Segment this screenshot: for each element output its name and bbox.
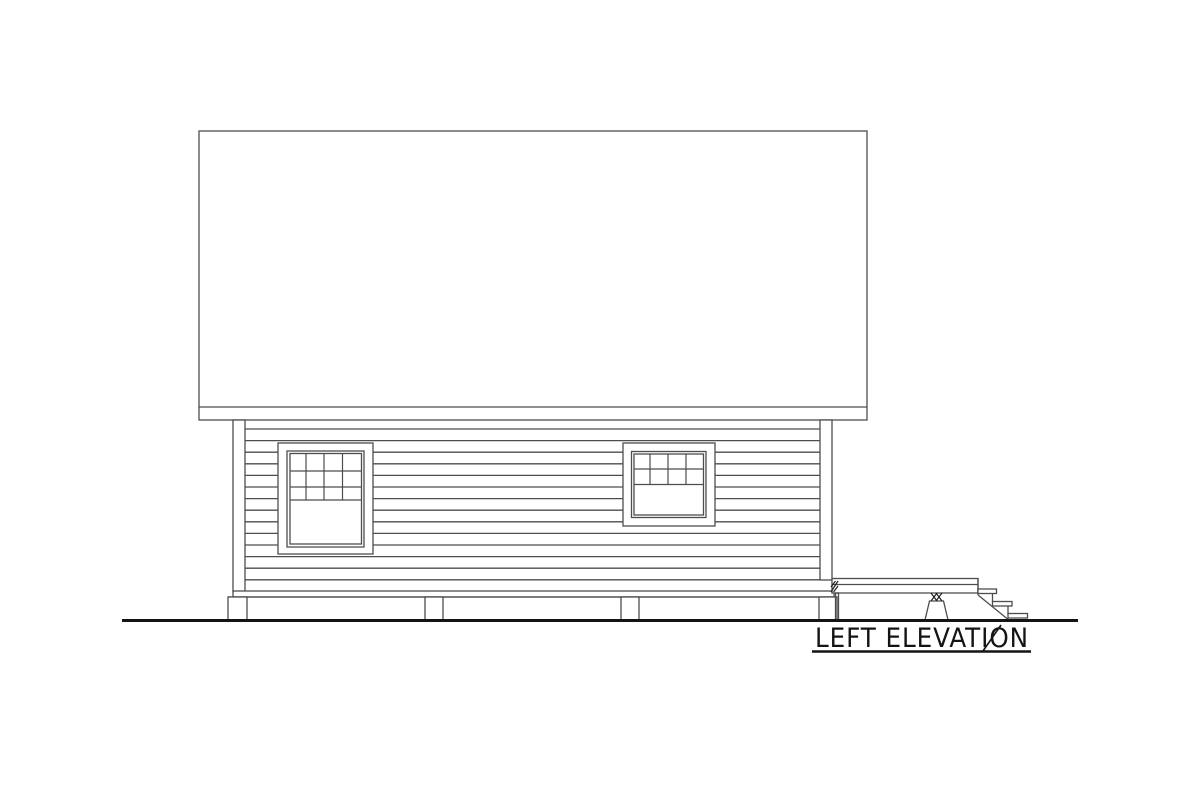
window-left	[278, 443, 373, 554]
window-right	[623, 443, 715, 526]
roof-plane	[199, 131, 867, 420]
stair-tread	[978, 589, 997, 594]
pier-footing	[925, 601, 948, 620]
foundation-pier	[228, 597, 247, 620]
title-block: LEFT ELEVATION	[812, 623, 1031, 654]
pier-bracket-hatch	[931, 593, 942, 601]
stair-tread	[1008, 614, 1028, 619]
deck	[831, 579, 1010, 622]
wall-skirt-board	[233, 591, 834, 597]
stair-stringer	[978, 595, 1010, 621]
deck-rim-band	[832, 579, 978, 594]
stair-tread	[993, 602, 1013, 607]
roof-outline	[199, 131, 867, 420]
right-corner-board	[820, 420, 832, 580]
foundation	[228, 597, 837, 620]
drawing-title: LEFT ELEVATION	[815, 623, 1029, 654]
foundation-pier	[425, 597, 443, 620]
stairs	[978, 589, 1028, 618]
elevation-drawing: LEFT ELEVATION	[0, 0, 1200, 800]
deck-center-pier	[925, 593, 948, 620]
foundation-pier	[621, 597, 639, 620]
drawing-sheet: LEFT ELEVATION	[0, 0, 1200, 800]
left-corner-board	[233, 420, 245, 592]
window-left-casing	[278, 443, 373, 554]
foundation-pier	[819, 597, 837, 620]
